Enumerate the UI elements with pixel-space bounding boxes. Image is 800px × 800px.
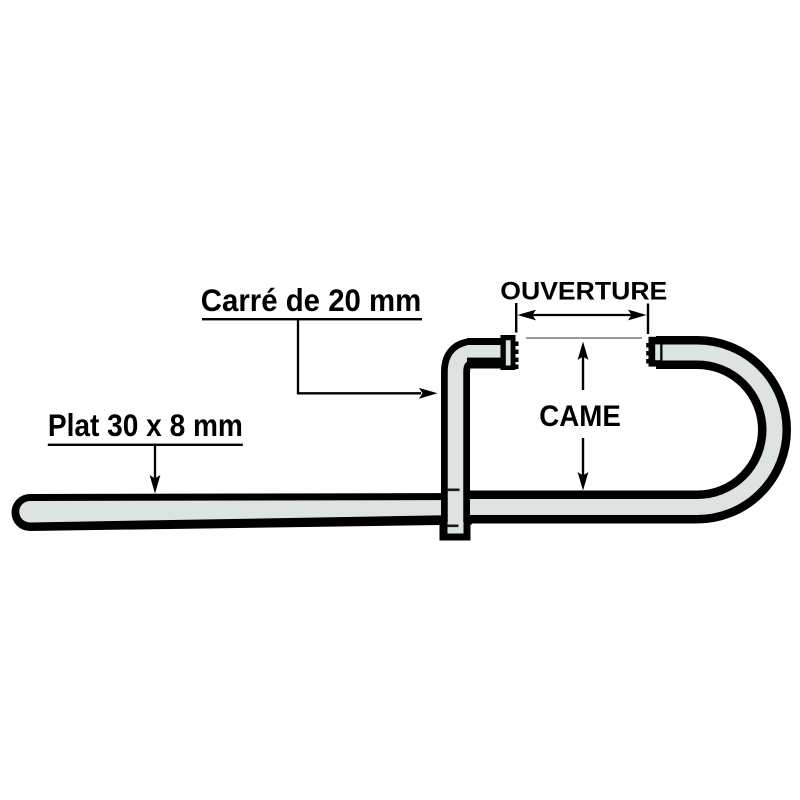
svg-text:Carré de 20 mm: Carré de 20 mm (201, 282, 421, 318)
svg-text:OUVERTURE: OUVERTURE (500, 278, 667, 306)
svg-text:CAME: CAME (539, 400, 621, 433)
svg-text:Plat 30 x 8 mm: Plat 30 x 8 mm (48, 407, 243, 443)
